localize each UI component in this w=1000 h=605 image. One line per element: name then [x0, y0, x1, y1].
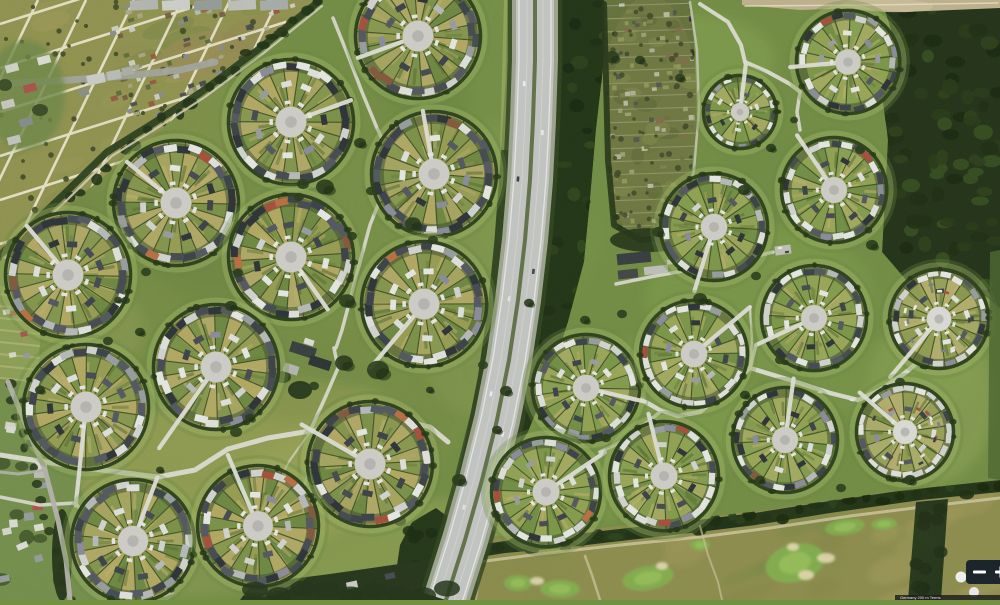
svg-text:Germany 200 m Terms: Germany 200 m Terms: [900, 595, 941, 600]
